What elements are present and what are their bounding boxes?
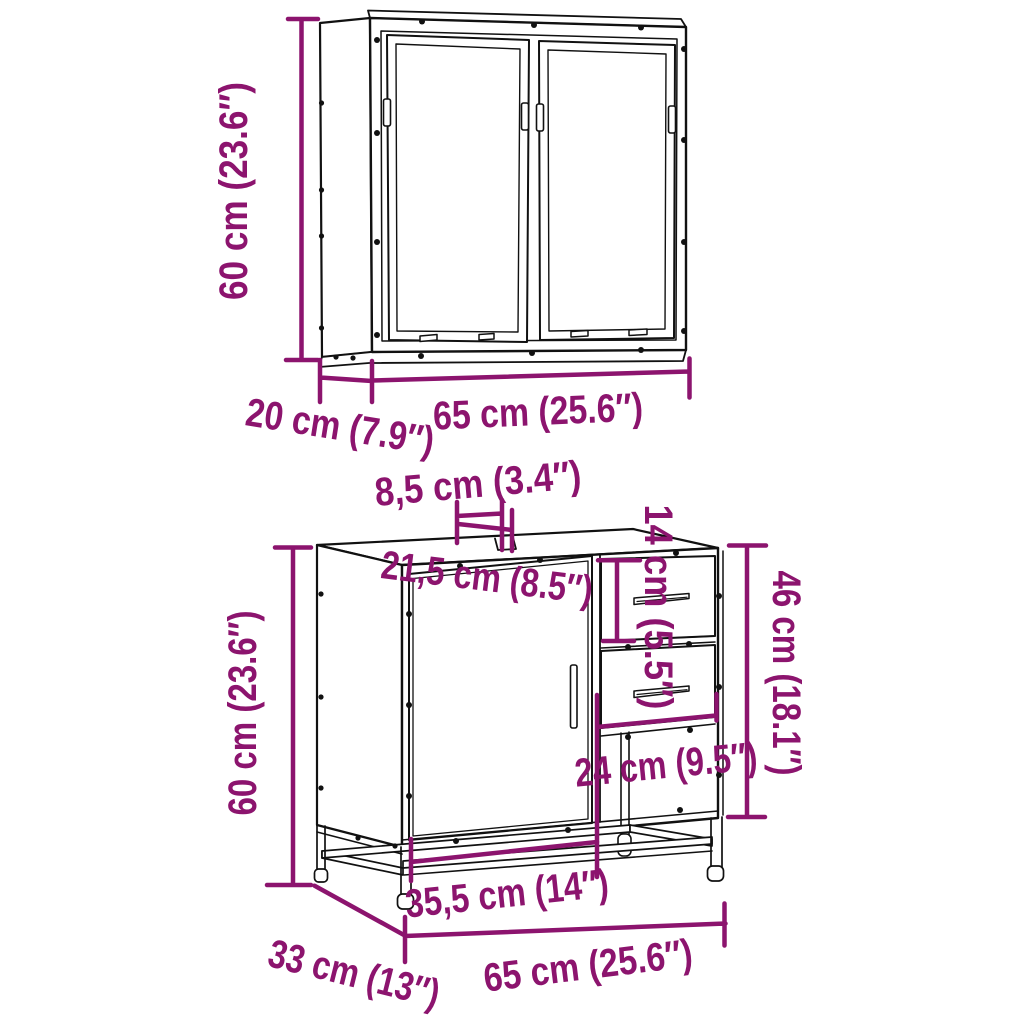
svg-text:8,5 cm (3.4″): 8,5 cm (3.4″) (373, 453, 583, 515)
svg-text:33 cm (13″): 33 cm (13″) (264, 931, 444, 1016)
svg-text:20 cm (7.9″): 20 cm (7.9″) (243, 390, 438, 463)
svg-text:65 cm (25.6″): 65 cm (25.6″) (432, 385, 644, 438)
svg-text:60 cm (23.6″): 60 cm (23.6″) (221, 611, 265, 816)
svg-text:46 cm (18.1″): 46 cm (18.1″) (764, 571, 808, 776)
svg-text:35,5 cm (14″): 35,5 cm (14″) (403, 861, 610, 926)
svg-text:65 cm (25.6″): 65 cm (25.6″) (481, 931, 695, 1000)
svg-text:60 cm (23.6″): 60 cm (23.6″) (212, 82, 256, 300)
svg-text:14 cm (5.5″): 14 cm (5.5″) (636, 505, 680, 710)
